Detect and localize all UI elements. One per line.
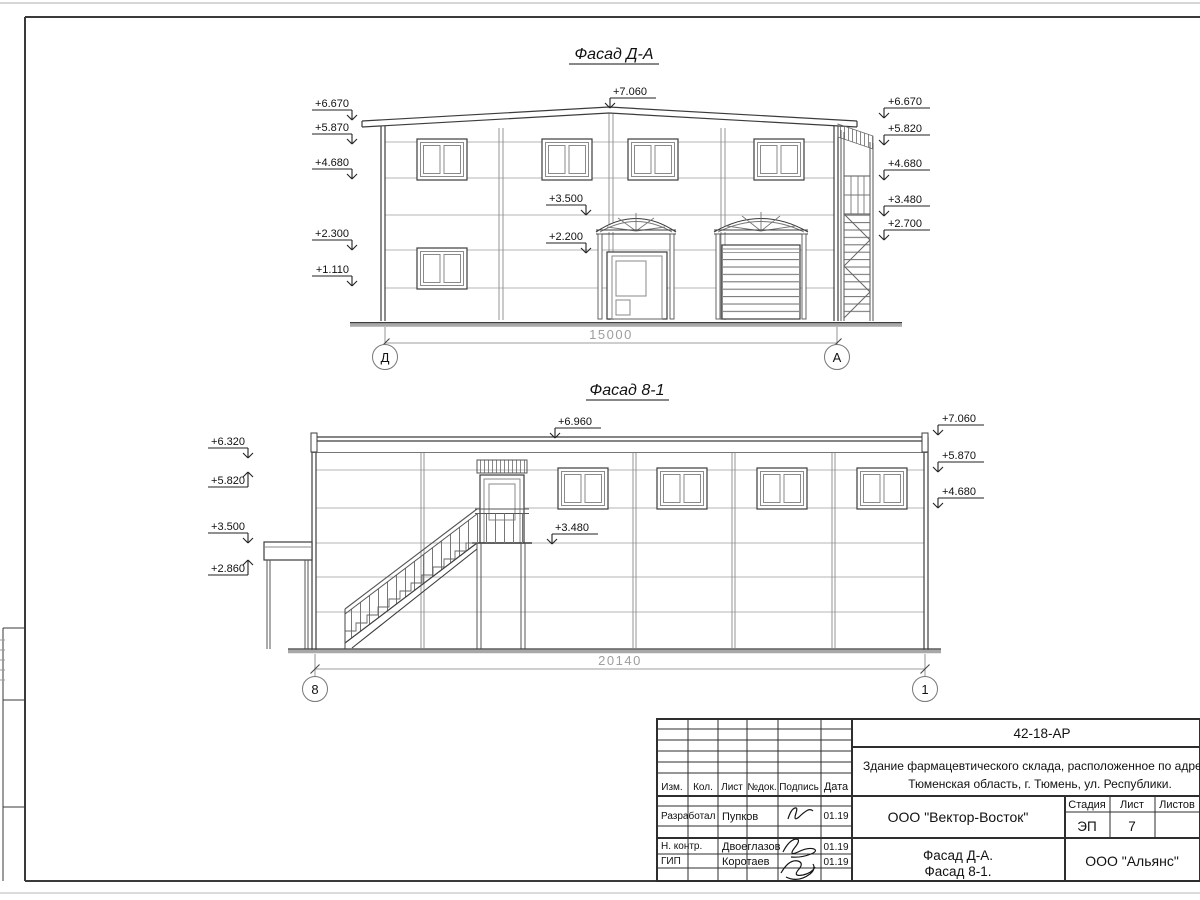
row-name: Двоеглазов	[722, 841, 781, 853]
canopy-post	[716, 234, 720, 319]
col-header-ndok: №док.	[747, 782, 776, 793]
stair-handrail	[345, 509, 477, 609]
row-date: 01.19	[823, 811, 848, 822]
elevation-mark: +7.060	[942, 413, 976, 425]
drawing-frame	[25, 17, 1200, 881]
project-address-line2: Тюменская область, г. Тюмень, ул. Респуб…	[908, 777, 1172, 791]
platform-balusters	[475, 514, 529, 544]
elevation-mark: +6.670	[315, 98, 349, 110]
canopy-post	[670, 234, 674, 319]
stair-balusters	[345, 514, 477, 643]
stage-value: ЭП	[1077, 819, 1096, 834]
facade-da-dimension: 15000 Д А	[373, 327, 850, 370]
facade-da-roof	[362, 107, 857, 127]
facade-da-title: Фасад Д-А	[574, 46, 653, 63]
window	[754, 139, 804, 180]
canopy-post	[802, 234, 806, 319]
drawing-name-line1: Фасад Д-А.	[923, 848, 993, 863]
signatures	[781, 808, 815, 880]
col-header-kol: Кол.	[693, 782, 713, 793]
stage-label: Стадия	[1068, 799, 1106, 811]
axis-label: 1	[921, 682, 928, 697]
col-header-list: Лист	[721, 782, 743, 793]
signature	[788, 808, 813, 819]
elevation-mark: +4.680	[942, 486, 976, 498]
elevation-mark: +3.500	[211, 521, 245, 533]
elevation-mark: +5.870	[315, 122, 349, 134]
signature	[781, 861, 815, 880]
row-role: Разработал	[661, 810, 716, 822]
elevation-mark: +4.680	[315, 157, 349, 169]
side-canopy	[264, 542, 312, 649]
elevation-mark: +5.820	[888, 123, 922, 135]
col-header-podpis: Подпись	[779, 782, 819, 793]
document-number: 42-18-АР	[1013, 726, 1070, 741]
facade-81-dimension: 20140 8 1	[303, 653, 938, 702]
garage-gate-assembly	[714, 212, 808, 319]
sheets-label: Листов	[1159, 799, 1195, 811]
dimension-value: 15000	[589, 327, 633, 342]
design-company: ООО "Вектор-Восток"	[888, 809, 1029, 825]
elevation-mark: +2.300	[315, 228, 349, 240]
row-role: ГИП	[661, 856, 681, 867]
entrance-door-assembly	[596, 213, 676, 319]
window	[657, 468, 707, 509]
drawing-name-line2: Фасад 8-1.	[925, 864, 992, 879]
facade-da: Фасад Д-А	[312, 46, 930, 370]
elevation-mark: +7.060	[613, 86, 647, 98]
window	[542, 139, 592, 180]
axis-label: А	[833, 350, 842, 365]
col-header-izm: Изм.	[661, 782, 682, 793]
facade-81-ground	[288, 649, 941, 652]
elevation-mark: +2.200	[549, 231, 583, 243]
elevation-mark: +6.960	[558, 416, 592, 428]
stair-stringer	[345, 543, 477, 643]
elevation-mark: +2.860	[211, 563, 245, 575]
facade-da-ground	[350, 323, 902, 325]
elevation-mark: +3.480	[555, 522, 589, 534]
col-header-data: Дата	[824, 781, 849, 793]
canopy-post	[598, 234, 602, 319]
client-company: ООО "Альянс"	[1085, 853, 1179, 869]
facade-81: Фасад 8-1	[208, 382, 984, 702]
drawing-sheet: Фасад Д-А	[0, 0, 1200, 900]
row-role: Н. контр.	[661, 841, 702, 852]
facade-da-stair-tower	[838, 124, 873, 321]
elevation-mark: +5.820	[211, 475, 245, 487]
stair-door-assembly	[472, 460, 532, 649]
left-attribute-strip	[0, 628, 25, 881]
door-canopy-hatch	[477, 460, 527, 473]
window	[417, 248, 467, 289]
facade-81-title: Фасад 8-1	[590, 382, 665, 399]
elevation-mark: +3.480	[888, 194, 922, 206]
axis-label: 8	[311, 682, 318, 697]
gate-slats	[723, 252, 799, 318]
window	[628, 139, 678, 180]
window	[417, 139, 467, 180]
elevation-mark: +6.320	[211, 436, 245, 448]
row-date: 01.19	[823, 842, 848, 853]
row-name: Коротаев	[722, 856, 770, 868]
dimension-value: 20140	[598, 653, 642, 668]
external-stair	[345, 509, 477, 649]
window	[558, 468, 608, 509]
row-name: Пупков	[722, 811, 758, 823]
sheet-number: 7	[1128, 819, 1136, 834]
title-block: Изм. Кол. Лист №док. Подпись Дата Разраб…	[657, 719, 1200, 881]
elevation-mark: +5.870	[942, 450, 976, 462]
elevation-mark: +2.700	[888, 218, 922, 230]
sheet-label: Лист	[1120, 799, 1144, 811]
elevation-mark: +4.680	[888, 158, 922, 170]
elevation-mark: +1.110	[316, 264, 349, 276]
project-address-line1: Здание фармацевтического склада, располо…	[863, 759, 1200, 773]
axis-label: Д	[381, 350, 390, 365]
stair-roof-hatch	[838, 124, 873, 149]
elevation-mark: +3.500	[549, 193, 583, 205]
window	[757, 468, 807, 509]
elevation-mark: +6.670	[888, 96, 922, 108]
window	[857, 468, 907, 509]
row-date: 01.19	[823, 857, 848, 868]
ladder-rungs	[844, 214, 870, 318]
